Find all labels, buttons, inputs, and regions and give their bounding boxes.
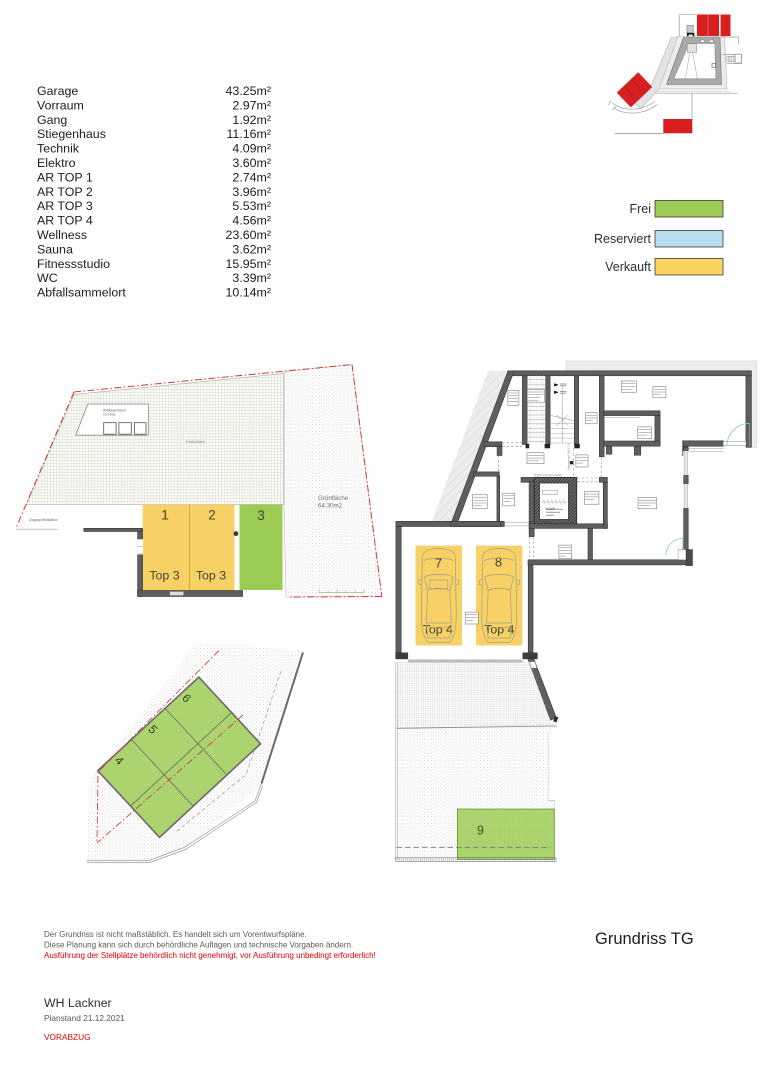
svg-text:Top 3: Top 3: [149, 569, 179, 583]
svg-text:Frei: Frei: [629, 202, 651, 216]
svg-text:Technik: Technik: [37, 142, 80, 156]
svg-text:AR TOP 4: AR TOP 4: [37, 214, 93, 228]
svg-text:4.56m²: 4.56m²: [232, 214, 271, 228]
svg-text:Stiegenhaus: Stiegenhaus: [37, 127, 106, 141]
svg-text:43.25m²: 43.25m²: [226, 84, 271, 98]
svg-text:8: 8: [495, 555, 502, 570]
svg-text:Reserviert: Reserviert: [594, 232, 651, 246]
svg-text:10.14m2: 10.14m2: [103, 413, 116, 417]
svg-text:3.62m²: 3.62m²: [232, 242, 271, 256]
svg-text:64.30m2: 64.30m2: [318, 503, 343, 510]
svg-text:1: 1: [161, 508, 169, 523]
svg-text:Fitnessstudio: Fitnessstudio: [37, 257, 110, 271]
svg-text:Der Grundriss ist nicht maßstä: Der Grundriss ist nicht maßstäblich. Es …: [44, 930, 307, 939]
svg-text:Stiegenlauf 16x17.5: Stiegenlauf 16x17.5: [567, 443, 571, 470]
svg-text:VORABZUG: VORABZUG: [44, 1032, 91, 1042]
svg-text:3: 3: [257, 508, 265, 523]
svg-text:Abfallsammelort: Abfallsammelort: [37, 286, 126, 300]
svg-text:Planstand 21.12.2021: Planstand 21.12.2021: [44, 1013, 125, 1023]
svg-text:Vorraum: Vorraum: [37, 98, 84, 112]
svg-text:10.14m²: 10.14m²: [226, 286, 271, 300]
svg-text:3.39m²: 3.39m²: [232, 271, 271, 285]
svg-text:Ausführung der Stellplätze beh: Ausführung der Stellplätze behördlich ni…: [44, 951, 376, 960]
svg-text:2.74m²: 2.74m²: [232, 170, 271, 184]
svg-text:Grünfläche: Grünfläche: [318, 495, 349, 502]
svg-text:WC: WC: [37, 271, 58, 285]
svg-text:5.53m²: 5.53m²: [232, 199, 271, 213]
svg-text:2: 2: [208, 508, 216, 523]
svg-text:7: 7: [435, 556, 442, 571]
svg-text:11.16m²: 11.16m²: [226, 127, 271, 141]
svg-text:AR TOP 1: AR TOP 1: [37, 170, 93, 184]
svg-text:Top 4: Top 4: [484, 623, 514, 637]
svg-text:Verkauft: Verkauft: [605, 260, 651, 274]
svg-text:Wellness: Wellness: [37, 228, 87, 242]
svg-text:Elektro: Elektro: [37, 156, 76, 170]
svg-text:Grundriss TG: Grundriss TG: [595, 930, 694, 948]
svg-text:Zugang Miststation: Zugang Miststation: [29, 518, 58, 522]
svg-text:Parkplätze: Parkplätze: [186, 439, 206, 444]
svg-text:Sauna: Sauna: [37, 242, 73, 256]
svg-text:4.09m²: 4.09m²: [232, 142, 271, 156]
svg-text:Garage: Garage: [37, 84, 78, 98]
svg-text:9: 9: [477, 824, 484, 838]
svg-text:AR TOP 2: AR TOP 2: [37, 185, 93, 199]
svg-text:3.60m²: 3.60m²: [232, 156, 271, 170]
svg-text:WH Lackner: WH Lackner: [44, 996, 112, 1010]
svg-text:1.92m²: 1.92m²: [232, 113, 271, 127]
svg-text:Top 3: Top 3: [196, 569, 226, 583]
svg-text:2.97m²: 2.97m²: [232, 98, 271, 112]
svg-text:Diese Planung kann sich durch: Diese Planung kann sich durch behördlich…: [44, 940, 353, 949]
svg-text:TOP4 +29.00 OKRD: TOP4 +29.00 OKRD: [533, 474, 563, 478]
svg-text:15.95m²: 15.95m²: [226, 257, 271, 271]
svg-text:3.96m²: 3.96m²: [232, 185, 271, 199]
svg-text:6.0kW: 6.0kW: [546, 507, 555, 511]
svg-text:Gang: Gang: [37, 113, 67, 127]
svg-text:AR TOP 3: AR TOP 3: [37, 199, 93, 213]
svg-text:23.60m²: 23.60m²: [226, 228, 271, 242]
